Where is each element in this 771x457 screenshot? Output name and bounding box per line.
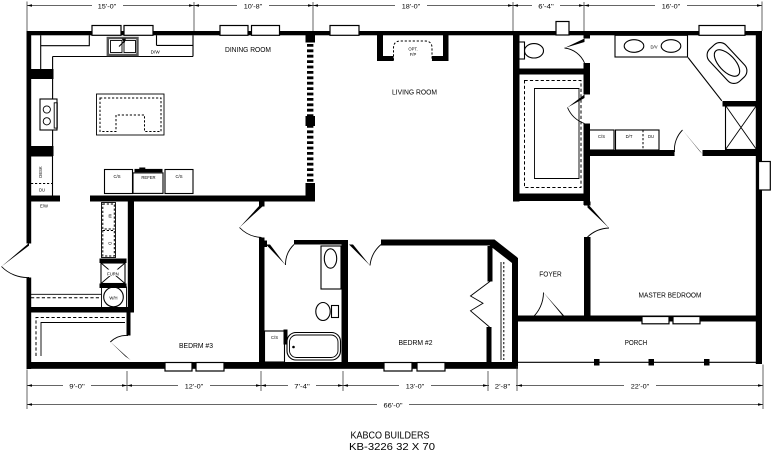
svg-text:C/S: C/S — [598, 134, 605, 139]
svg-text:FOYER: FOYER — [539, 272, 562, 279]
svg-text:6'-4": 6'-4" — [538, 3, 554, 10]
svg-text:15'-0": 15'-0" — [98, 3, 117, 10]
svg-text:C/S: C/S — [114, 174, 121, 179]
svg-text:F/P: F/P — [410, 52, 417, 57]
svg-text:W/H: W/H — [109, 296, 117, 301]
svg-text:D/W: D/W — [151, 50, 160, 55]
svg-text:DU: DU — [39, 188, 45, 193]
svg-text:BEDRM #2: BEDRM #2 — [399, 340, 433, 347]
svg-text:REFER: REFER — [141, 175, 155, 180]
svg-text:MASTER BEDROOM: MASTER BEDROOM — [639, 293, 702, 300]
svg-text:18'-0": 18'-0" — [402, 3, 421, 10]
svg-text:9'-0": 9'-0" — [69, 383, 85, 390]
svg-text:E/W: E/W — [40, 204, 48, 209]
svg-text:KB-3226 32 X 70: KB-3226 32 X 70 — [349, 442, 435, 453]
svg-text:C/S: C/S — [271, 335, 278, 340]
svg-text:PORCH: PORCH — [625, 340, 648, 347]
svg-text:22'-0": 22'-0" — [631, 383, 650, 390]
svg-text:C/S: C/S — [176, 174, 183, 179]
svg-text:FURN: FURN — [107, 272, 119, 277]
svg-text:D/T: D/T — [626, 134, 633, 139]
svg-text:2'-8": 2'-8" — [495, 383, 511, 390]
svg-text:DESK: DESK — [38, 166, 43, 178]
svg-text:BEDRM #3: BEDRM #3 — [179, 343, 213, 350]
svg-text:10'-8": 10'-8" — [244, 3, 263, 10]
svg-text:12'-0": 12'-0" — [185, 383, 204, 390]
svg-text:DU: DU — [648, 134, 654, 139]
svg-text:13'-0": 13'-0" — [406, 383, 425, 390]
svg-text:16'-0": 16'-0" — [662, 3, 681, 10]
svg-text:D: D — [108, 242, 113, 245]
svg-text:W: W — [108, 214, 113, 218]
svg-text:KABCO BUILDERS: KABCO BUILDERS — [351, 431, 430, 442]
svg-text:66'-0": 66'-0" — [384, 402, 404, 409]
svg-text:D/V: D/V — [651, 45, 658, 50]
svg-text:OPT.: OPT. — [408, 47, 417, 52]
svg-text:DINING ROOM: DINING ROOM — [225, 47, 271, 54]
svg-text:7'-4": 7'-4" — [294, 383, 310, 390]
svg-text:LIVING ROOM: LIVING ROOM — [392, 90, 437, 97]
